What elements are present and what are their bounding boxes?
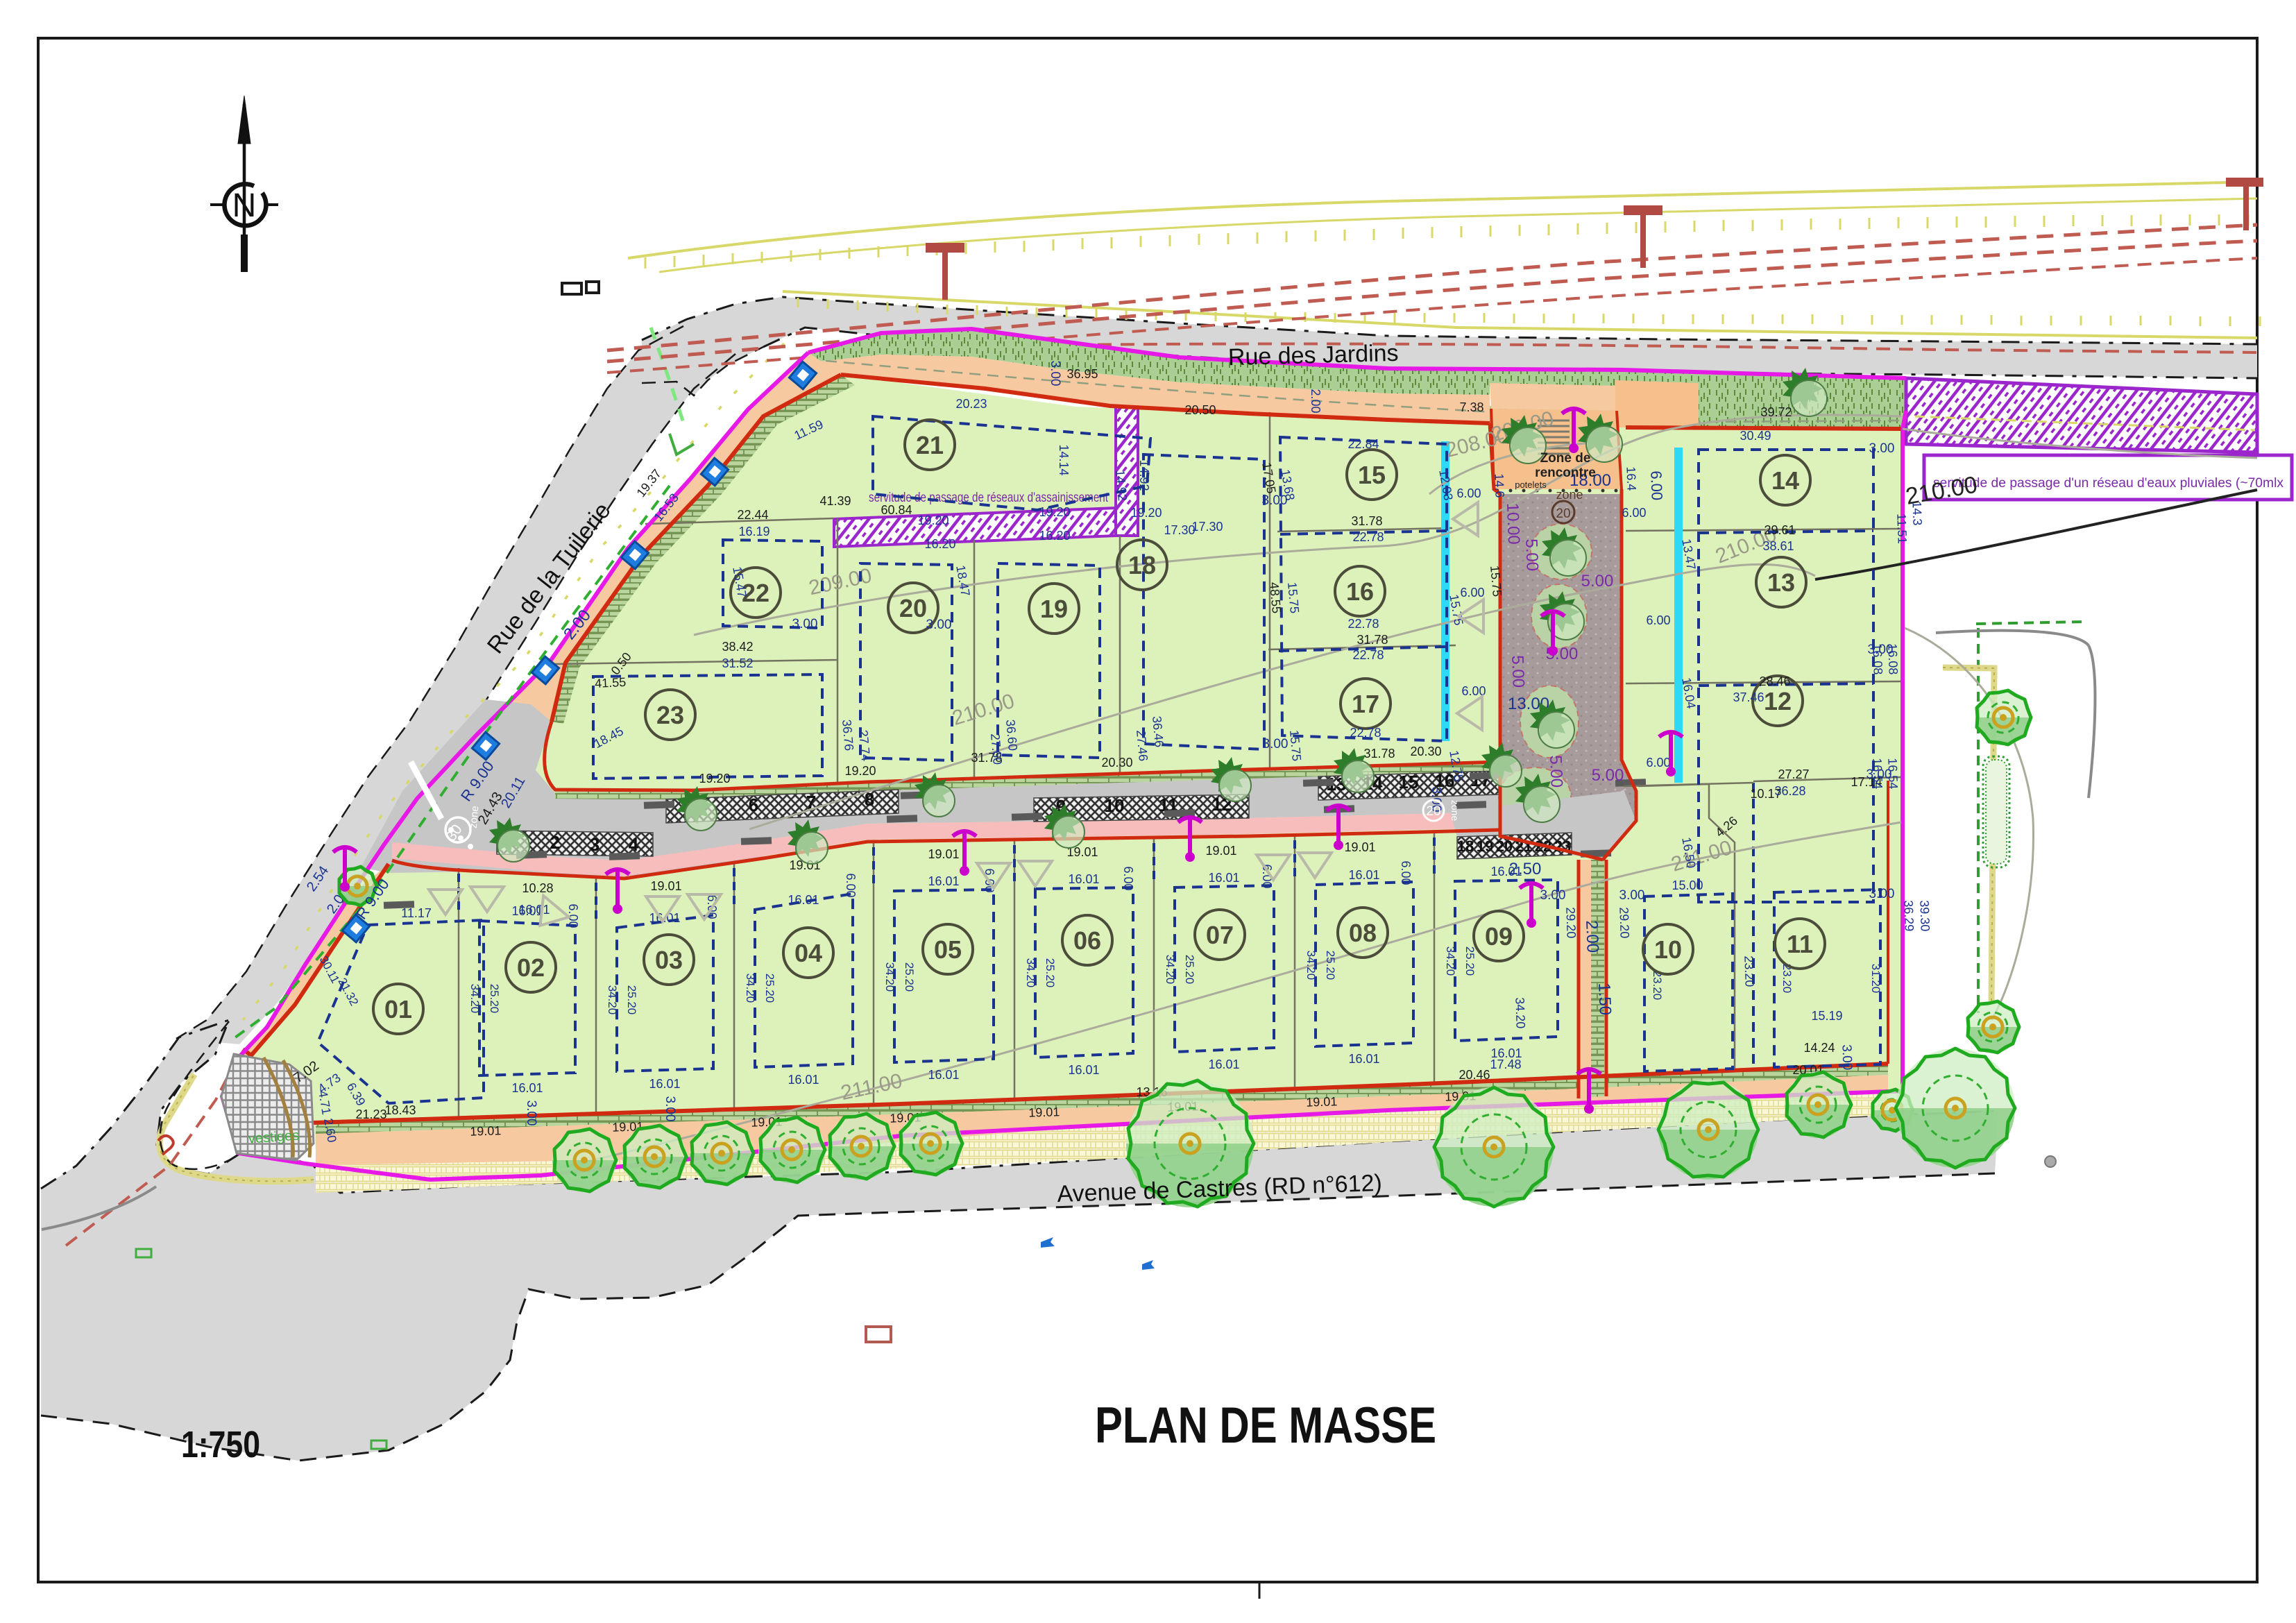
svg-text:14.92: 14.92	[1137, 459, 1151, 491]
svg-text:2.00: 2.00	[1582, 920, 1602, 953]
svg-text:34.20: 34.20	[1444, 946, 1457, 976]
svg-text:31.78: 31.78	[1351, 514, 1382, 528]
svg-text:3.00: 3.00	[1619, 888, 1645, 903]
svg-text:15.75: 15.75	[1285, 581, 1302, 614]
svg-text:3.00: 3.00	[1263, 737, 1289, 751]
svg-text:14.24: 14.24	[1803, 1041, 1835, 1055]
svg-text:18.43: 18.43	[384, 1103, 416, 1117]
svg-text:31.20: 31.20	[1869, 964, 1882, 994]
svg-text:19.20: 19.20	[917, 513, 949, 527]
svg-text:6.00: 6.00	[1456, 486, 1481, 500]
svg-text:16.01: 16.01	[649, 1077, 680, 1091]
svg-text:34.20: 34.20	[883, 962, 896, 992]
svg-text:16.01: 16.01	[928, 874, 959, 888]
svg-text:22.44: 22.44	[737, 508, 768, 522]
svg-text:2: 2	[550, 832, 560, 853]
svg-text:19.01: 19.01	[1344, 840, 1375, 854]
svg-text:zone: zone	[468, 806, 482, 829]
svg-text:6.00: 6.00	[1646, 756, 1670, 770]
svg-text:16.01: 16.01	[1348, 868, 1379, 882]
svg-text:19.01: 19.01	[1028, 1105, 1060, 1120]
svg-text:27.74: 27.74	[856, 729, 873, 762]
svg-text:10: 10	[1654, 935, 1682, 964]
svg-text:5.00: 5.00	[1581, 572, 1614, 590]
svg-text:18: 18	[1128, 551, 1156, 579]
svg-text:6: 6	[749, 794, 758, 815]
svg-text:3.00: 3.00	[524, 1101, 538, 1126]
svg-text:16.4: 16.4	[1624, 466, 1638, 491]
svg-text:36.76: 36.76	[840, 719, 856, 751]
svg-text:25.20: 25.20	[903, 962, 916, 992]
svg-text:14.14: 14.14	[1057, 444, 1071, 475]
svg-text:zone: zone	[1449, 800, 1461, 822]
svg-text:09: 09	[1485, 922, 1513, 951]
svg-text:16.08: 16.08	[1885, 643, 1900, 675]
svg-text:4: 4	[629, 834, 639, 855]
svg-text:14.3: 14.3	[1910, 501, 1924, 526]
svg-text:16.01: 16.01	[1348, 1052, 1379, 1066]
svg-text:29.20: 29.20	[1617, 907, 1632, 939]
svg-text:5.00: 5.00	[1508, 655, 1528, 688]
svg-text:rencontre: rencontre	[1535, 466, 1596, 480]
svg-text:20.30: 20.30	[1410, 745, 1441, 758]
svg-text:16.54: 16.54	[1885, 758, 1900, 790]
svg-text:41.55: 41.55	[595, 675, 627, 690]
svg-text:22.78: 22.78	[1350, 726, 1381, 740]
svg-text:3.00: 3.00	[1839, 1044, 1854, 1071]
svg-text:37.46: 37.46	[1733, 690, 1764, 704]
svg-text:20.50: 20.50	[1184, 403, 1216, 417]
svg-text:36.60: 36.60	[1003, 719, 1020, 751]
svg-text:07: 07	[1206, 921, 1234, 949]
svg-text:16.01: 16.01	[788, 1073, 819, 1087]
svg-text:08: 08	[1349, 919, 1377, 947]
svg-text:60.84: 60.84	[881, 503, 912, 517]
svg-text:6.00: 6.00	[1399, 860, 1413, 885]
svg-text:18: 18	[1457, 838, 1474, 855]
svg-text:3.00: 3.00	[1869, 441, 1895, 456]
svg-text:19.01: 19.01	[470, 1123, 502, 1139]
svg-text:15.19: 15.19	[1811, 1009, 1842, 1023]
svg-text:3: 3	[590, 834, 599, 855]
svg-text:16.08: 16.08	[1870, 643, 1885, 675]
svg-text:38.42: 38.42	[722, 640, 753, 654]
svg-text:2.00: 2.00	[1309, 389, 1323, 413]
svg-text:17.30: 17.30	[1191, 520, 1223, 534]
svg-text:21.23: 21.23	[355, 1107, 386, 1121]
svg-text:11: 11	[1787, 930, 1813, 958]
svg-text:30.49: 30.49	[1740, 429, 1771, 443]
svg-text:16.01: 16.01	[1490, 865, 1522, 878]
svg-text:6.00: 6.00	[844, 873, 858, 897]
svg-text:25.20: 25.20	[763, 974, 776, 1003]
svg-text:16.20: 16.20	[924, 537, 955, 551]
svg-text:36.28: 36.28	[1774, 784, 1805, 798]
svg-text:19.20: 19.20	[1130, 506, 1162, 520]
svg-text:23.20: 23.20	[1651, 971, 1664, 1001]
svg-text:29.20: 29.20	[1563, 907, 1579, 939]
svg-text:10: 10	[1105, 795, 1125, 816]
svg-text:25.20: 25.20	[1183, 955, 1196, 985]
svg-text:36.95: 36.95	[1066, 367, 1098, 381]
svg-text:27.60: 27.60	[988, 733, 1005, 765]
svg-text:25.20: 25.20	[625, 985, 638, 1015]
svg-text:12: 12	[1764, 687, 1792, 715]
svg-text:31.78: 31.78	[1363, 747, 1395, 760]
svg-text:19.01: 19.01	[1306, 1094, 1338, 1110]
svg-text:20: 20	[899, 594, 927, 622]
svg-text:3.00: 3.00	[1262, 493, 1288, 508]
svg-text:27.46: 27.46	[1134, 729, 1150, 762]
svg-text:6.00: 6.00	[1647, 470, 1665, 501]
svg-text:39.30: 39.30	[1917, 900, 1932, 932]
svg-text:19: 19	[1477, 838, 1493, 855]
svg-text:20: 20	[1426, 804, 1440, 819]
svg-text:25.20: 25.20	[488, 984, 501, 1014]
svg-text:19.01: 19.01	[928, 847, 959, 861]
svg-text:5.00: 5.00	[1592, 766, 1624, 785]
svg-text:3.00: 3.00	[1869, 887, 1895, 901]
svg-text:5.00: 5.00	[1522, 538, 1542, 572]
svg-text:29.61: 29.61	[1764, 523, 1795, 537]
svg-text:01: 01	[384, 995, 412, 1023]
svg-text:3.00: 3.00	[792, 617, 818, 631]
svg-text:3.00: 3.00	[1540, 888, 1566, 903]
svg-text:potelets: potelets	[1515, 479, 1547, 490]
svg-text:6.00: 6.00	[1622, 506, 1646, 520]
svg-text:20.30: 20.30	[1101, 756, 1132, 770]
svg-text:16.01: 16.01	[928, 1068, 959, 1082]
svg-text:23.20: 23.20	[1742, 955, 1757, 987]
svg-text:15: 15	[1358, 461, 1386, 489]
svg-text:22.78: 22.78	[1347, 617, 1379, 631]
svg-text:34.20: 34.20	[744, 974, 757, 1003]
svg-text:06: 06	[1073, 926, 1101, 955]
svg-text:36.29: 36.29	[1901, 900, 1916, 932]
svg-text:Zone de: Zone de	[1540, 451, 1591, 466]
svg-text:14.92: 14.92	[1113, 469, 1130, 502]
svg-text:6.00: 6.00	[1121, 866, 1135, 890]
svg-text:31.52: 31.52	[722, 656, 753, 670]
svg-text:19.01: 19.01	[1205, 844, 1236, 858]
svg-text:15.75: 15.75	[1287, 729, 1304, 762]
svg-text:PLAN DE MASSE: PLAN DE MASSE	[1095, 1397, 1436, 1454]
svg-text:16.01: 16.01	[788, 893, 819, 907]
svg-text:17.48: 17.48	[1490, 1057, 1521, 1071]
svg-text:3.00: 3.00	[663, 1096, 677, 1122]
svg-text:zone: zone	[1556, 488, 1583, 502]
svg-text:36.46: 36.46	[1150, 715, 1166, 748]
svg-text:34.20: 34.20	[468, 984, 482, 1014]
svg-text:22.84: 22.84	[1347, 437, 1379, 451]
svg-text:34.20: 34.20	[1304, 951, 1318, 980]
svg-text:34.20: 34.20	[606, 985, 619, 1015]
svg-text:05: 05	[934, 935, 962, 964]
svg-text:21: 21	[916, 431, 944, 459]
svg-text:1.50: 1.50	[1595, 983, 1615, 1016]
svg-text:14: 14	[1771, 466, 1799, 495]
svg-text:13: 13	[1767, 568, 1795, 597]
svg-text:19.01: 19.01	[650, 879, 681, 893]
svg-text:15.75: 15.75	[1488, 565, 1504, 597]
svg-text:25.20: 25.20	[1324, 951, 1337, 980]
svg-text:20.46: 20.46	[1459, 1068, 1490, 1082]
svg-text:16.20: 16.20	[1039, 529, 1070, 543]
svg-text:48.55: 48.55	[1267, 581, 1284, 614]
svg-text:11.17: 11.17	[401, 906, 432, 920]
svg-text:16.19: 16.19	[738, 525, 769, 538]
svg-text:17.30: 17.30	[1164, 523, 1195, 537]
svg-text:19.20: 19.20	[844, 764, 876, 778]
svg-text:3.00: 3.00	[926, 618, 952, 632]
svg-text:20: 20	[1496, 838, 1513, 855]
svg-text:servitude de passage d'un rése: servitude de passage d'un réseau d'eaux …	[1933, 476, 2284, 491]
svg-text:19.20: 19.20	[699, 772, 730, 785]
svg-text:03: 03	[655, 946, 683, 974]
svg-text:19.20: 19.20	[1039, 505, 1070, 519]
svg-text:34.20: 34.20	[1513, 997, 1528, 1029]
svg-text:28.46: 28.46	[1759, 674, 1790, 688]
svg-text:38.61: 38.61	[1762, 539, 1794, 553]
svg-text:20: 20	[1556, 507, 1570, 521]
svg-text:16.01: 16.01	[511, 1081, 543, 1095]
svg-text:31.78: 31.78	[1357, 633, 1388, 647]
svg-text:11.51: 11.51	[1894, 513, 1910, 544]
svg-text:20.23: 20.23	[955, 397, 987, 411]
svg-text:25.20: 25.20	[1044, 958, 1057, 988]
svg-text:10.00: 10.00	[1503, 502, 1523, 545]
svg-text:16.54: 16.54	[1870, 758, 1885, 790]
svg-text:34.20: 34.20	[1024, 958, 1037, 988]
svg-text:7.38: 7.38	[1459, 400, 1483, 414]
svg-text:6.00: 6.00	[1460, 586, 1484, 600]
svg-text:14.6: 14.6	[1492, 473, 1506, 498]
svg-text:23: 23	[656, 701, 684, 729]
svg-text:22.78: 22.78	[1352, 648, 1384, 662]
svg-text:27.27: 27.27	[1778, 767, 1809, 781]
svg-text:16.01: 16.01	[1068, 872, 1099, 886]
svg-text:16.01: 16.01	[1208, 1057, 1239, 1071]
svg-text:22.78: 22.78	[1352, 530, 1384, 544]
svg-text:25.20: 25.20	[1463, 946, 1477, 976]
svg-text:41.39: 41.39	[819, 494, 851, 508]
svg-text:3.00: 3.00	[1048, 361, 1062, 386]
svg-text:17: 17	[1352, 690, 1379, 718]
svg-text:N: N	[232, 187, 257, 224]
svg-text:15: 15	[1399, 772, 1419, 792]
svg-text:34.20: 34.20	[1164, 955, 1177, 985]
svg-text:1:750: 1:750	[181, 1424, 260, 1465]
svg-text:16: 16	[1346, 577, 1374, 606]
svg-text:04: 04	[794, 939, 822, 967]
svg-text:16.01: 16.01	[1208, 871, 1239, 885]
svg-text:02: 02	[517, 953, 545, 982]
svg-text:10.28: 10.28	[522, 881, 553, 895]
svg-text:6.00: 6.00	[1646, 613, 1670, 627]
svg-text:39.72: 39.72	[1760, 405, 1792, 419]
svg-text:16.01: 16.01	[1068, 1063, 1099, 1077]
svg-text:Rue des Jardins: Rue des Jardins	[1227, 340, 1399, 371]
svg-text:16.01: 16.01	[518, 903, 550, 917]
svg-text:19: 19	[1040, 595, 1068, 623]
